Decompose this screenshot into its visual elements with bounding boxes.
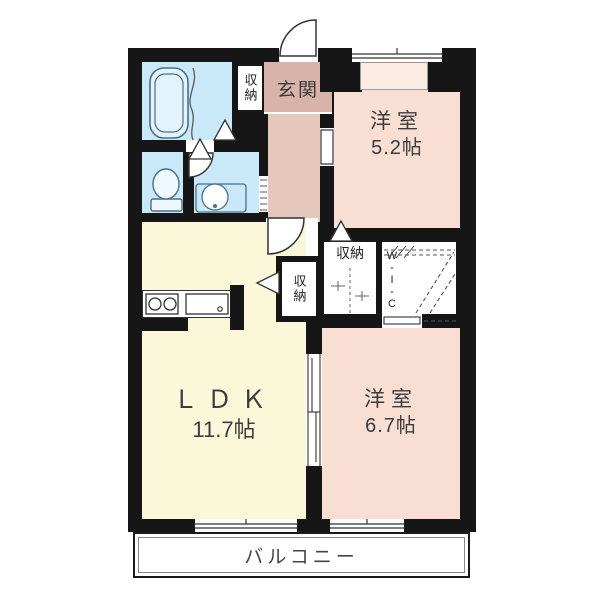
balcony-label: バルコニー (133, 532, 470, 578)
kitchen-wall-cap (230, 285, 244, 330)
entrance-label: 玄関 (264, 74, 332, 102)
washroom-door-opening (186, 140, 214, 152)
wic-label: W-I-C (382, 248, 402, 312)
bedroom-closet-label: 収納 (322, 242, 378, 264)
wall-block (428, 62, 460, 92)
floorplan: 玄関 収納 収納 収納 W-I-C 洋室 5.2帖 洋室 6.7帖 ＬＤＫ 11… (0, 0, 600, 600)
bedroom-small-label: 洋室 5.2帖 (334, 100, 460, 170)
kitchen-counter (142, 290, 232, 318)
hallway (268, 114, 320, 222)
washroom (194, 152, 259, 213)
ldk-label: ＬＤＫ 11.7帖 (142, 376, 306, 452)
bedroom-large-window (330, 519, 404, 533)
kitchen-wall-strip (142, 318, 188, 331)
washroom-louver-door (259, 176, 268, 212)
entrance-storage-label: 収納 (236, 64, 264, 112)
bedroom-large-label: 洋室 6.7帖 (322, 378, 460, 448)
bedroom-small-window (352, 48, 442, 62)
bedroom-small-door-opening (320, 128, 334, 166)
sliding-partition (306, 354, 322, 466)
bathroom (142, 62, 232, 140)
toilet-room (142, 152, 183, 213)
ldk-closet-label: 収納 (282, 262, 316, 316)
entrance-threshold (279, 48, 318, 62)
ldk-window (195, 519, 297, 533)
window-bay (360, 62, 428, 90)
wic-door-opening (382, 314, 422, 328)
